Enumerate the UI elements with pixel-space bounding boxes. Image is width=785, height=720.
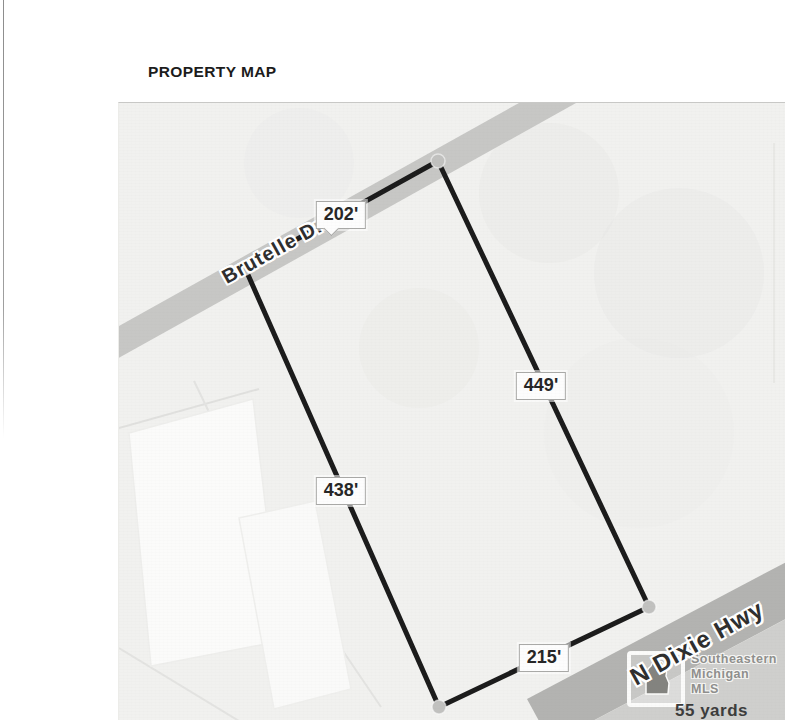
page-title: PROPERTY MAP: [148, 63, 277, 81]
scale-label: 55 yards: [675, 701, 748, 720]
scan-smudges: [244, 108, 764, 528]
dim-label-bottom: 215': [519, 644, 569, 672]
building-footprints: [129, 399, 351, 709]
vertex-dot-top: [431, 154, 445, 168]
dim-label-top: 202': [316, 201, 366, 229]
dim-label-right: 449': [516, 372, 566, 400]
vertex-dot-bottom-right: [642, 600, 656, 614]
vertex-dot-bottom-left: [432, 700, 446, 714]
page-root: PROPERTY MAP: [0, 0, 785, 720]
mls-logo-line2: Michigan: [691, 667, 777, 682]
dim-label-left: 438': [316, 477, 366, 505]
scan-artifact-line: [3, 0, 4, 438]
mls-logo-line3: MLS: [691, 682, 777, 697]
map-canvas: [119, 103, 785, 720]
mls-logo-text: Southeastern Michigan MLS: [691, 652, 777, 697]
property-map: Southeastern Michigan MLS Brutelle Dr N …: [118, 102, 785, 720]
